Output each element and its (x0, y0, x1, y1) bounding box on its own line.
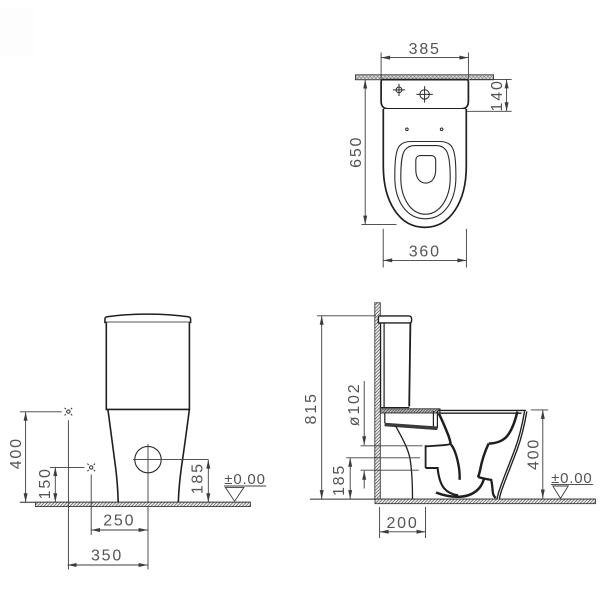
svg-text:385: 385 (409, 41, 441, 58)
svg-text:ø102: ø102 (346, 383, 363, 427)
svg-text:200: 200 (386, 515, 418, 532)
svg-text:250: 250 (103, 512, 135, 529)
svg-text:360: 360 (409, 244, 441, 261)
svg-text:185: 185 (331, 464, 348, 496)
svg-text:185: 185 (190, 462, 207, 494)
svg-text:815: 815 (303, 392, 320, 424)
svg-text:400: 400 (8, 437, 25, 469)
svg-text:350: 350 (91, 547, 123, 564)
svg-text:140: 140 (489, 79, 506, 111)
svg-text:150: 150 (37, 467, 54, 499)
svg-text:400: 400 (525, 438, 542, 470)
svg-text:650: 650 (348, 136, 365, 168)
